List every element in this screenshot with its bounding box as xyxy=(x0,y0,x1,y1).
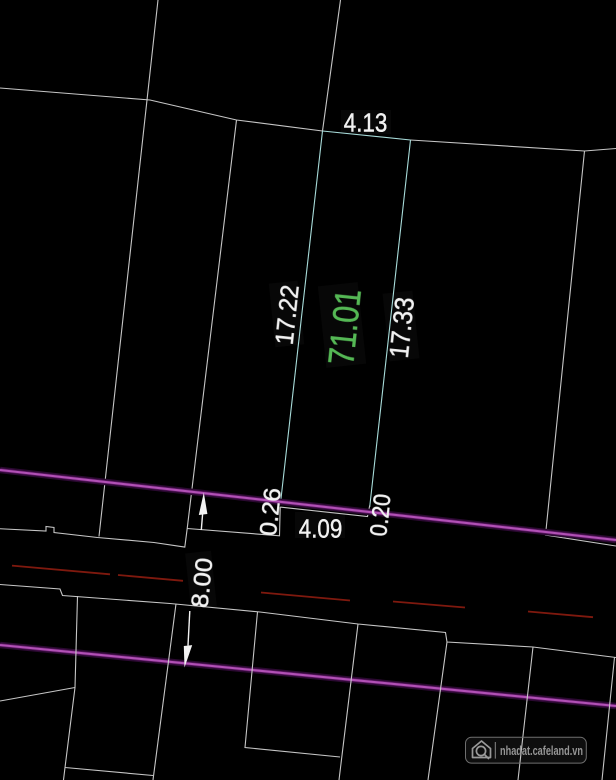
svg-text:0.26: 0.26 xyxy=(255,487,287,538)
svg-text:17.33: 17.33 xyxy=(384,296,420,360)
svg-text:71.01: 71.01 xyxy=(320,287,369,367)
svg-text:4.13: 4.13 xyxy=(344,109,388,137)
svg-text:8.00: 8.00 xyxy=(187,557,219,610)
svg-text:4.09: 4.09 xyxy=(299,514,343,544)
svg-text:nhadat.cafeland.vn: nhadat.cafeland.vn xyxy=(500,743,583,758)
svg-text:0.20: 0.20 xyxy=(365,493,396,538)
